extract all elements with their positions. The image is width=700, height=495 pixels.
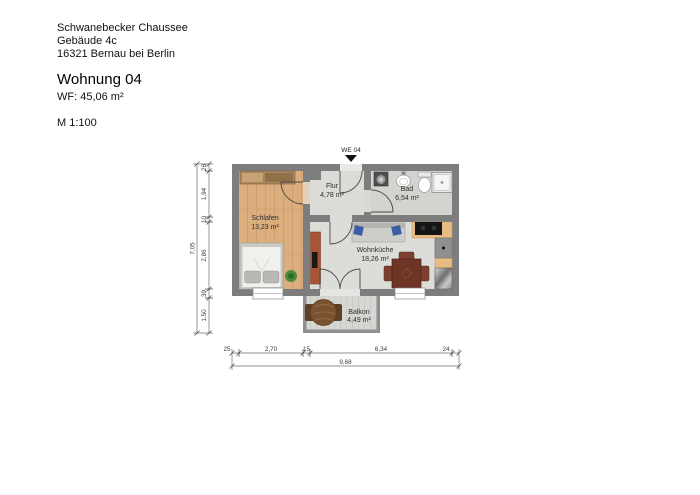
oven-knob — [442, 247, 445, 250]
pillow — [245, 271, 261, 283]
shower-drain — [441, 181, 444, 184]
unit-label: WE 04 — [341, 147, 361, 154]
dim-v-1: 1,94 — [201, 187, 208, 200]
toilet-tank — [418, 172, 431, 177]
dim-total-vertical: 7,05 — [190, 242, 197, 255]
dim-total-horizontal: 9,68 — [339, 359, 352, 366]
entrance-marker-icon — [345, 155, 357, 162]
fridge — [435, 268, 452, 289]
room-area-bad: 6,54 m² — [395, 195, 419, 202]
wohnkueche-door-gap — [330, 215, 352, 222]
plant-center — [288, 273, 294, 279]
dim-v-0: 26 — [201, 164, 208, 172]
dim-h-0: 25 — [223, 346, 231, 353]
page: Schwanebecker Chaussee Gebäude 4c 16321 … — [0, 0, 700, 495]
address-line-1: Schwanebecker Chaussee — [57, 22, 188, 35]
chair — [384, 266, 392, 281]
wardrobe-section — [242, 173, 263, 182]
desk-chair — [312, 252, 318, 268]
burner — [432, 226, 437, 231]
floor-plan: WE 04 Schlafen 13,23 m² Flur 4,78 m² Bad… — [185, 140, 485, 385]
dim-v-4: 39 — [201, 290, 208, 298]
sofa-pillow — [353, 225, 364, 236]
dimension-vertical: 7,05 26 1,94 10 2,86 39 1,50 — [190, 162, 214, 336]
dim-h-1: 2,70 — [265, 346, 278, 353]
wall-stub-flur — [310, 171, 321, 180]
room-label-balkon: Balkon — [348, 309, 370, 316]
dim-h-4: 24 — [442, 346, 450, 353]
bad-door-gap — [364, 190, 371, 212]
drawing-header: Schwanebecker Chaussee Gebäude 4c 16321 … — [57, 22, 188, 129]
schlafen-door-gap — [303, 182, 310, 204]
wardrobe-section — [265, 173, 293, 182]
room-area-wohnkueche: 18,26 m² — [361, 256, 389, 263]
address-line-2: Gebäude 4c — [57, 35, 188, 48]
room-area-balkon: 4,49 m² — [347, 317, 371, 324]
burner — [421, 226, 426, 231]
room-area-flur: 4,78 m² — [320, 192, 344, 199]
living-area-value: WF: 45,06 m² — [57, 91, 188, 103]
toilet — [419, 178, 431, 193]
dining-table — [392, 259, 421, 288]
room-area-schlafen: 13,23 m² — [251, 224, 279, 231]
room-label-flur: Flur — [326, 183, 339, 190]
room-label-schlafen: Schlafen — [251, 215, 278, 222]
dim-h-3: 6,34 — [375, 346, 388, 353]
room-label-wohnkueche: Wohnküche — [357, 247, 394, 254]
dim-v-2: 10 — [201, 216, 208, 224]
sofa-pillow — [391, 225, 402, 236]
scale-note: M 1:100 — [57, 117, 188, 129]
cooktop — [415, 222, 442, 235]
room-label-bad: Bad — [401, 186, 414, 193]
dim-v-3: 2,86 — [201, 249, 208, 262]
dim-h-2: 15 — [303, 346, 311, 353]
dimension-horizontal: 25 2,70 15 6,34 24 9,68 — [223, 346, 461, 370]
sink-faucet — [402, 172, 406, 176]
entrance-door-gap — [340, 164, 362, 171]
chair — [421, 266, 429, 281]
balcony-door-gap — [320, 289, 360, 296]
apartment-title: Wohnung 04 — [57, 71, 188, 88]
address-line-3: 16321 Bernau bei Berlin — [57, 48, 188, 61]
dim-v-5: 1,50 — [201, 309, 208, 322]
washing-machine-drum — [379, 177, 384, 182]
pillow — [263, 271, 279, 283]
